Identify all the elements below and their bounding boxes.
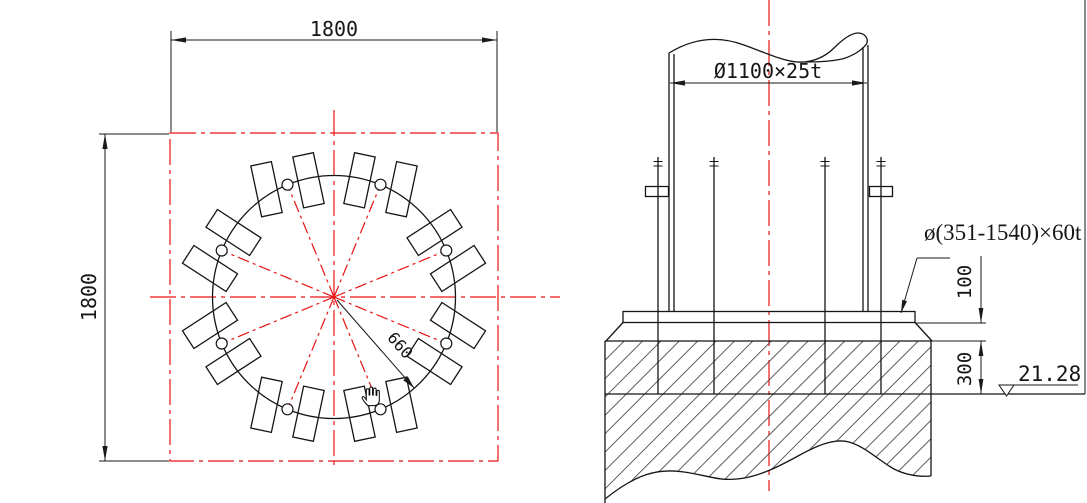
cad-drawing-area[interactable]: 1800 1800 660 (0, 0, 1087, 503)
radial-centerline (334, 185, 381, 297)
dim-radius-660: 660 (337, 300, 417, 388)
radial-centerline (222, 251, 334, 298)
grout-slope-right (915, 323, 932, 342)
bolt-hole (216, 338, 227, 349)
anchor-plate (407, 210, 462, 256)
arrowhead-icon (852, 80, 867, 85)
dim-pipe-diameter: Ø1100×25t (670, 59, 867, 86)
arrowhead-icon (979, 308, 984, 323)
anchor-plate (344, 153, 375, 208)
pipe-break-line (669, 33, 867, 62)
anchor-plate (293, 386, 324, 441)
plan-view[interactable]: 1800 1800 660 (77, 17, 560, 470)
radial-centerline (288, 297, 335, 409)
dim-height-text: 1800 (77, 273, 101, 321)
anchor-plate (430, 303, 485, 349)
level-marker: 21.28 (999, 362, 1081, 396)
arrowhead-icon (979, 379, 984, 394)
grout-slope-left (606, 323, 623, 342)
bolt-hole (441, 338, 452, 349)
pipe-dim-text: Ø1100×25t (714, 59, 822, 83)
bolt-hole (282, 179, 293, 190)
anchor-plate (251, 162, 282, 217)
dim-300-text: 300 (954, 352, 976, 386)
anchor-plate (386, 162, 417, 217)
arrowhead-icon (102, 446, 107, 461)
anchor-plate (182, 246, 237, 292)
arrowhead-icon (670, 80, 685, 85)
elevation-view[interactable]: Ø1100×25t (605, 0, 1085, 503)
dim-100-text: 100 (954, 265, 976, 299)
radial-centerline (222, 297, 334, 344)
anchor-plate (407, 339, 462, 385)
bolt-hole (441, 245, 452, 256)
anchor-plate (251, 377, 282, 432)
arrowhead-icon (482, 37, 497, 42)
bolt-hole (216, 245, 227, 256)
arrowhead-icon (979, 341, 984, 356)
concrete-hatch (605, 341, 931, 499)
anchor-plate (182, 303, 237, 349)
anchor-plate (206, 339, 261, 385)
bolt-nut-plate (646, 187, 669, 197)
level-text: 21.28 (1018, 362, 1081, 386)
anchor-plate (293, 153, 324, 208)
base-plate-label-text: ø(351-1540)×60t (924, 220, 1082, 245)
arrowhead-icon (171, 37, 186, 42)
arrowhead-icon (102, 134, 107, 149)
anchor-plate (206, 210, 261, 256)
bolt-hole (282, 404, 293, 415)
radial-centerline (288, 185, 335, 297)
drawing-canvas[interactable]: 1800 1800 660 (0, 0, 1087, 503)
dim-radius-text: 660 (383, 328, 416, 362)
base-plate-label-group: ø(351-1540)×60t (901, 220, 1082, 313)
radial-centerline (334, 251, 446, 298)
bolt-hole (375, 179, 386, 190)
anchor-plate (430, 246, 485, 292)
dim-width-text: 1800 (310, 17, 358, 41)
